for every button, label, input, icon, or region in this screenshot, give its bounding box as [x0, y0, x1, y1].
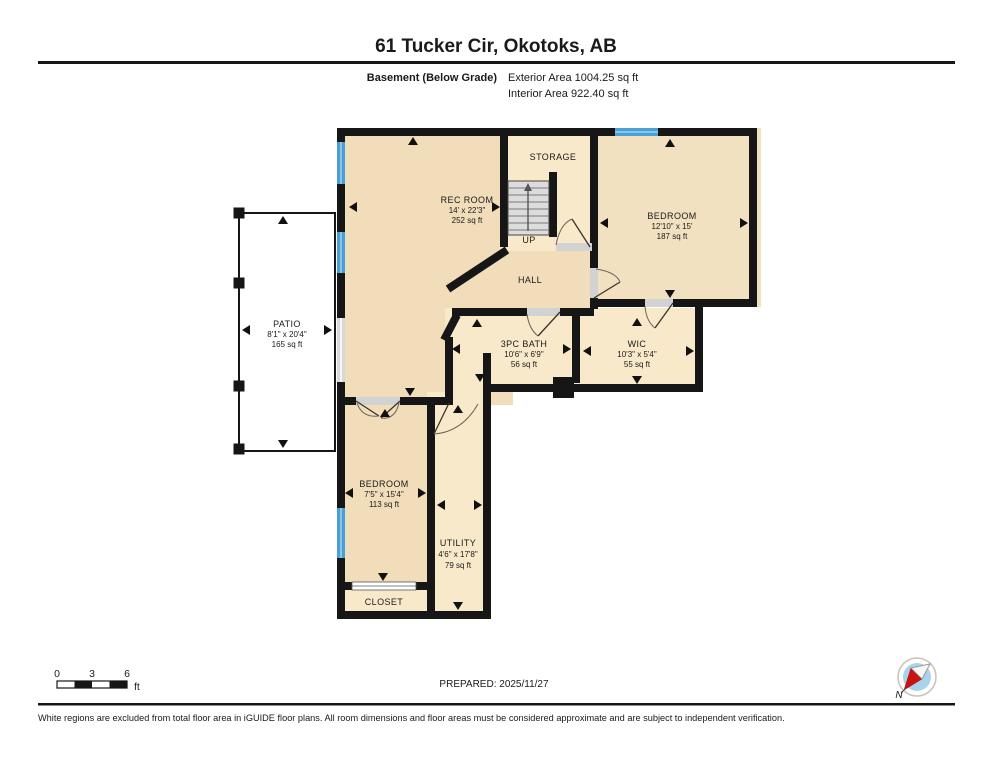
patio-post — [234, 444, 245, 455]
room-name: BEDROOM — [647, 211, 696, 221]
room-name: PATIO — [273, 319, 301, 329]
floor-label: Basement (Below Grade) — [367, 72, 498, 84]
scale-unit: ft — [134, 681, 140, 693]
room-dim: 12'10" x 15' — [651, 222, 693, 231]
stairs-up-label: UP — [522, 235, 535, 245]
room-closet-label: CLOSET — [365, 597, 404, 607]
header: 61 Tucker Cir, Okotoks, AB Basement (Bel… — [38, 36, 955, 100]
room-name: UTILITY — [440, 538, 476, 548]
room-dim: 8'1" x 20'4" — [267, 330, 307, 339]
room-area: 55 sq ft — [624, 360, 651, 369]
room-area: 113 sq ft — [369, 500, 400, 509]
patio-post — [234, 278, 245, 289]
compass-icon: N — [895, 658, 936, 701]
window-marker — [337, 142, 345, 184]
scale-tick-3: 3 — [89, 668, 95, 680]
room-hall-label: HALL — [518, 275, 542, 285]
scale-bar: 0 3 6 ft — [54, 668, 140, 693]
room-area: 252 sq ft — [452, 216, 483, 225]
header-divider — [38, 61, 955, 64]
window-marker — [337, 232, 345, 273]
footer-divider — [38, 703, 955, 706]
prepared-date: PREPARED: 2025/11/27 — [439, 679, 549, 690]
scale-tick-0: 0 — [54, 668, 60, 680]
window-marker — [337, 508, 345, 558]
patio-post — [234, 208, 245, 219]
room-area: 56 sq ft — [511, 360, 538, 369]
room-dim: 10'6" x 6'9" — [504, 350, 544, 359]
room-storage-label: STORAGE — [530, 152, 577, 162]
scale-tick-6: 6 — [124, 668, 130, 680]
room-area: 79 sq ft — [445, 561, 472, 570]
room-name: REC ROOM — [441, 195, 494, 205]
compass-north-label: N — [895, 690, 903, 701]
room-name: 3PC BATH — [501, 339, 548, 349]
floor-plan-svg: 61 Tucker Cir, Okotoks, AB Basement (Bel… — [0, 0, 993, 768]
page-title: 61 Tucker Cir, Okotoks, AB — [375, 36, 617, 57]
floorplan-page: 61 Tucker Cir, Okotoks, AB Basement (Bel… — [0, 0, 993, 768]
wall-pillar — [553, 377, 574, 398]
room-dim: 14' x 22'3" — [449, 206, 486, 215]
staircase — [508, 181, 549, 235]
room-dim: 4'6" x 17'8" — [438, 550, 478, 559]
window-marker — [615, 128, 658, 136]
interior-area: Interior Area 922.40 sq ft — [508, 88, 628, 100]
disclaimer-text: White regions are excluded from total fl… — [38, 713, 785, 723]
room-area: 165 sq ft — [272, 340, 303, 349]
room-dim: 7'5" x 15'4" — [364, 490, 404, 499]
room-name: WIC — [628, 339, 647, 349]
closet-door — [352, 582, 416, 590]
room-dim: 10'3" x 5'4" — [617, 350, 657, 359]
exterior-area: Exterior Area 1004.25 sq ft — [508, 72, 638, 84]
room-area: 187 sq ft — [657, 232, 688, 241]
patio-post — [234, 381, 245, 392]
sliding-door — [337, 318, 345, 382]
room-name: BEDROOM — [359, 479, 408, 489]
